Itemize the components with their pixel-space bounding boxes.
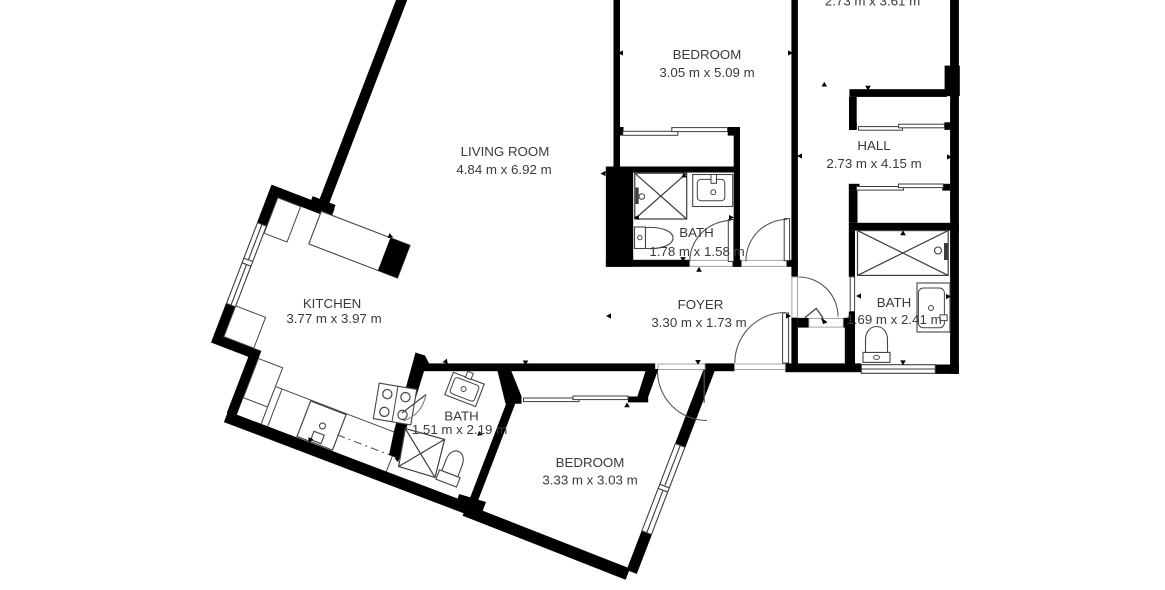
svg-text:BEDROOM: BEDROOM xyxy=(673,47,742,62)
svg-text:3.05 m x 5.09 m: 3.05 m x 5.09 m xyxy=(659,65,754,80)
svg-text:KITCHEN: KITCHEN xyxy=(303,296,361,311)
svg-text:BATH: BATH xyxy=(877,295,911,310)
svg-text:3.30 m x 1.73 m: 3.30 m x 1.73 m xyxy=(651,315,746,330)
svg-text:HALL: HALL xyxy=(857,138,890,153)
svg-text:2.73 m x 4.15 m: 2.73 m x 4.15 m xyxy=(826,156,921,171)
svg-text:2.73 m x 3.61 m: 2.73 m x 3.61 m xyxy=(825,0,920,9)
svg-text:3.33 m x 3.03 m: 3.33 m x 3.03 m xyxy=(542,473,637,488)
svg-text:FOYER: FOYER xyxy=(678,297,724,312)
svg-text:1.51 m x 2.19 m: 1.51 m x 2.19 m xyxy=(412,422,507,437)
svg-text:4.84 m x 6.92 m: 4.84 m x 6.92 m xyxy=(456,162,551,177)
svg-text:1.78 m x 1.58 m: 1.78 m x 1.58 m xyxy=(649,244,744,259)
svg-text:1.69 m x 2.41 m: 1.69 m x 2.41 m xyxy=(846,312,941,327)
svg-text:3.77 m x 3.97 m: 3.77 m x 3.97 m xyxy=(286,311,381,326)
svg-text:BATH: BATH xyxy=(679,225,713,240)
svg-text:BEDROOM: BEDROOM xyxy=(556,455,625,470)
svg-text:LIVING ROOM: LIVING ROOM xyxy=(461,144,550,159)
